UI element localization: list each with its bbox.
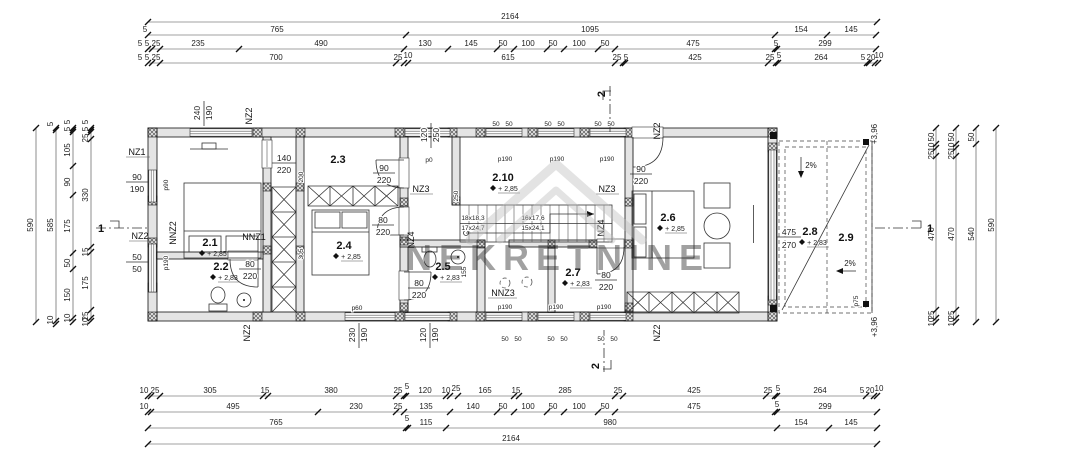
dim: 50	[597, 336, 605, 343]
fraction: 190	[430, 328, 440, 342]
dim: 25	[81, 133, 90, 142]
dim: 305	[298, 248, 305, 259]
section-1-right: 1	[927, 223, 933, 235]
opening-label-p190: p190	[549, 304, 564, 311]
dim: 145	[464, 39, 478, 48]
dim: 15	[512, 386, 521, 395]
svg-text:2%: 2%	[805, 161, 817, 170]
closet-circles	[500, 277, 532, 288]
dim: 765	[270, 25, 284, 34]
dim: 475	[686, 39, 700, 48]
dim: 490	[314, 39, 328, 48]
dim: 100	[521, 39, 535, 48]
dim: 5	[145, 53, 150, 62]
window	[486, 129, 522, 136]
window	[405, 313, 450, 320]
dim: 50	[549, 39, 558, 48]
fraction: 240	[192, 106, 202, 120]
dim: 90	[63, 177, 72, 186]
fraction: 80	[378, 215, 388, 225]
dim: 50	[967, 132, 976, 141]
dim: 5	[145, 39, 150, 48]
window	[538, 129, 574, 136]
dim: 765	[269, 418, 283, 427]
fraction: 230	[347, 328, 357, 342]
stair-annotation: 18x18,3	[461, 215, 485, 222]
dim: 10	[404, 51, 413, 60]
slope-arrow-left: 2%	[836, 259, 856, 274]
fraction: 190	[204, 106, 214, 120]
window	[345, 313, 395, 320]
dim: 235	[191, 39, 205, 48]
dim: 5	[774, 39, 779, 48]
dim: 140	[466, 402, 480, 411]
dim: 264	[813, 386, 827, 395]
wall-label-nz1: NZ1	[128, 147, 145, 157]
dim: 150	[63, 288, 72, 302]
dim: 25	[927, 150, 936, 159]
bed	[184, 183, 261, 258]
fraction: 190	[359, 328, 369, 342]
dim: 495	[226, 402, 240, 411]
dim: 2164	[501, 12, 519, 21]
fraction: 250	[431, 128, 441, 142]
room-level: + 2,85	[207, 251, 227, 258]
dim: 50	[557, 121, 565, 128]
fraction: 220	[377, 175, 391, 185]
fraction: 140	[277, 153, 291, 163]
dim: 50	[610, 336, 618, 343]
room-number: 2.1	[202, 237, 217, 249]
dim: 25	[151, 386, 160, 395]
room-number: 2.2	[213, 261, 228, 273]
dim: 425	[687, 386, 701, 395]
fraction: 220	[634, 176, 648, 186]
dim: 5	[143, 25, 148, 34]
dim: 5	[860, 386, 865, 395]
dim: 50	[607, 121, 615, 128]
svg-text:2%: 2%	[844, 259, 856, 268]
dim: 115	[420, 418, 433, 427]
opening-label-p190: p190	[498, 156, 513, 163]
slope-arrow-down: 2%	[798, 157, 817, 178]
dim: 590	[987, 218, 996, 232]
dim: 264	[814, 53, 828, 62]
dim: 5	[776, 384, 781, 393]
fraction: 220	[599, 282, 613, 292]
dim: 700	[269, 53, 283, 62]
dim: 380	[324, 386, 338, 395]
window	[538, 313, 574, 320]
dim: 10	[927, 142, 936, 151]
fraction: 190	[130, 184, 144, 194]
dim: 25	[394, 53, 403, 62]
round-table	[704, 213, 730, 239]
dim: 100	[572, 402, 586, 411]
dim: 154	[794, 418, 808, 427]
dim: 25	[764, 386, 773, 395]
dim: 50	[560, 336, 568, 343]
room-level: + 2,85	[341, 254, 361, 261]
watermark-text: NEKRETNINE	[406, 237, 710, 278]
dim: 50	[601, 402, 610, 411]
terrace-level: +3,96	[870, 123, 879, 144]
dim: 25	[152, 53, 161, 62]
dim: 5	[624, 53, 629, 62]
dim: 130	[418, 39, 432, 48]
room-number: 2.8	[802, 226, 817, 238]
dim: 10	[947, 142, 956, 151]
dim: 25	[613, 53, 622, 62]
section-2-bottom: 2	[590, 363, 602, 369]
dim: 475	[687, 402, 701, 411]
dim: 50	[499, 402, 508, 411]
window	[149, 244, 156, 292]
dim: 10	[947, 317, 956, 326]
dim: 5	[138, 53, 143, 62]
dim: 10	[140, 402, 149, 411]
dim: 5	[405, 382, 410, 391]
dim: 10	[81, 317, 90, 326]
fraction: 220	[376, 227, 390, 237]
dim: 50	[501, 336, 509, 343]
dim: 470	[947, 227, 956, 241]
room-level: + 2,83	[570, 281, 590, 288]
fraction: 220	[277, 165, 291, 175]
window	[590, 129, 626, 136]
dimension-cols-right: 50 10 25 470 25 10 50 10 25 470 25 10 50…	[927, 125, 999, 326]
dim: 50	[547, 336, 555, 343]
dim: 590	[26, 218, 35, 232]
opening-label-p60: p60	[352, 305, 363, 312]
dim: 50	[492, 121, 500, 128]
fraction: 90	[379, 163, 389, 173]
dim: 50	[63, 258, 72, 267]
sink	[237, 293, 251, 307]
dim: 980	[603, 418, 617, 427]
dim: 105	[63, 143, 72, 157]
dim: 5	[81, 126, 90, 131]
dim: 10	[442, 386, 451, 395]
dim: 25	[394, 402, 403, 411]
wall-label-nz2: NZ2	[652, 324, 662, 341]
dim: 50	[601, 39, 610, 48]
fraction: 90	[636, 164, 646, 174]
dimension-rows-top: 2164 5 765 1095 154 145 5 5 25 235 490 1…	[138, 12, 884, 66]
window	[190, 129, 252, 136]
fraction: 475	[782, 227, 796, 237]
window	[486, 313, 522, 320]
dim: 330	[81, 188, 90, 202]
wall-label-nz2: NZ2	[242, 324, 252, 341]
dim: 145	[844, 418, 858, 427]
room-level: + 2,85	[498, 186, 518, 193]
dimension-rows-bottom: 10 25 305 15 380 25 5 120 10 25 165 15 2…	[140, 382, 884, 447]
dim: 5	[777, 51, 782, 60]
dim: 100	[572, 39, 586, 48]
fraction: 120	[419, 128, 429, 142]
opening-label-p190: p190	[163, 255, 170, 270]
wall-label-nz3: NZ3	[598, 184, 615, 194]
opening-label-p0: p0	[425, 157, 433, 164]
dim: 25	[614, 386, 623, 395]
wall-label-nz2: NZ2	[244, 107, 254, 124]
wall-label-nnz2: NNZ2	[168, 221, 178, 245]
room-number: 2.9	[838, 232, 853, 244]
dim: 175	[63, 219, 72, 233]
section-1-left: 1	[98, 223, 104, 235]
room-level: + 2,85	[665, 226, 685, 233]
stair-annotation: 15x24,1	[521, 225, 545, 232]
fraction: 80	[414, 278, 424, 288]
fraction: 220	[243, 271, 257, 281]
dim: 120	[418, 386, 432, 395]
dim: 5	[46, 121, 55, 126]
dimension-cols-left: 590 5 585 10 5 5 105 90 175 50 150 10 5 …	[26, 119, 94, 327]
dim: 5	[81, 119, 90, 124]
dim: 2164	[502, 434, 520, 443]
dim: 10	[927, 317, 936, 326]
dim: 50	[499, 39, 508, 48]
dim: 165	[478, 386, 492, 395]
dim: 5	[775, 400, 780, 409]
room-number: 2.4	[336, 240, 352, 252]
dim: 540	[967, 227, 976, 241]
dim: 5	[63, 119, 72, 124]
opening-label-p90: p90	[163, 179, 170, 190]
room-number: 2.10	[492, 172, 513, 184]
dim: 5	[63, 126, 72, 131]
wall-label-nnz1: NNZ1	[242, 232, 266, 242]
dim: 10	[140, 386, 149, 395]
fraction: 270	[782, 240, 796, 250]
dim: 285	[558, 386, 572, 395]
dim: 1095	[581, 25, 599, 34]
wall-label-nz2: NZ2	[131, 231, 148, 241]
dim: 5	[138, 39, 143, 48]
floor-plan-page: 2164 5 765 1095 154 145 5 5 25 235 490 1…	[0, 0, 1080, 463]
dim: 299	[818, 39, 832, 48]
door	[262, 140, 272, 168]
dim: 175	[81, 276, 90, 290]
dim: 135	[419, 402, 433, 411]
dim: 10	[875, 51, 884, 60]
dim: 100	[521, 402, 535, 411]
dim: 50	[549, 402, 558, 411]
dim: 25	[152, 39, 161, 48]
dim: 50	[514, 336, 522, 343]
fraction: 50	[132, 264, 142, 274]
section-2-top: 2	[596, 91, 608, 97]
window	[149, 170, 156, 202]
opening-label-p190: p190	[498, 304, 513, 311]
sliding-glass-door	[754, 150, 777, 300]
dim: 25	[452, 384, 461, 393]
dim: 15	[81, 247, 90, 256]
dim: 25	[947, 150, 956, 159]
opening-label-p190: p190	[600, 156, 615, 163]
opening-label-p75: p75	[853, 295, 860, 306]
dim: 50	[927, 132, 936, 141]
dim: 615	[501, 53, 515, 62]
dim: 5	[861, 53, 866, 62]
wall-label-nz3: NZ3	[412, 184, 429, 194]
dim: 585	[46, 218, 55, 232]
dim: 50	[544, 121, 552, 128]
toilet	[209, 287, 227, 311]
dim: 250	[453, 190, 460, 201]
dim: 299	[818, 402, 832, 411]
dim: 5	[405, 414, 410, 423]
dim: 230	[349, 402, 363, 411]
side-table	[704, 183, 730, 208]
dim: 145	[844, 25, 858, 34]
room-level: + 2,83	[807, 240, 827, 247]
fraction: 80	[245, 259, 255, 269]
terrace-level: +3,96	[870, 316, 879, 337]
dim: 200	[298, 171, 305, 182]
fraction: 90	[132, 172, 142, 182]
dim: 10	[46, 315, 55, 324]
fraction: 120	[418, 328, 428, 342]
fraction: 220	[412, 290, 426, 300]
wall-label-nz2: NZ2	[652, 122, 662, 139]
wall-label-nnz3: NNZ3	[491, 288, 515, 298]
dim: 425	[688, 53, 702, 62]
dim: 15	[261, 386, 270, 395]
window	[590, 313, 626, 320]
dim: 50	[594, 121, 602, 128]
room-number: 2.3	[330, 154, 345, 166]
dim: 154	[794, 25, 808, 34]
dim: 25	[394, 386, 403, 395]
dim: 50	[505, 121, 513, 128]
dim: 50	[947, 132, 956, 141]
room-level: + 2,83	[218, 275, 238, 282]
dim: 10	[63, 313, 72, 322]
floor-plan-drawing: 2164 5 765 1095 154 145 5 5 25 235 490 1…	[0, 0, 1080, 463]
opening-label-p190: p190	[597, 304, 612, 311]
dim: 25	[766, 53, 775, 62]
dim: 10	[875, 384, 884, 393]
ceiling-fixture	[190, 143, 228, 149]
room-number: 2.6	[660, 212, 675, 224]
dim: 305	[203, 386, 217, 395]
fraction: 50	[132, 252, 142, 262]
